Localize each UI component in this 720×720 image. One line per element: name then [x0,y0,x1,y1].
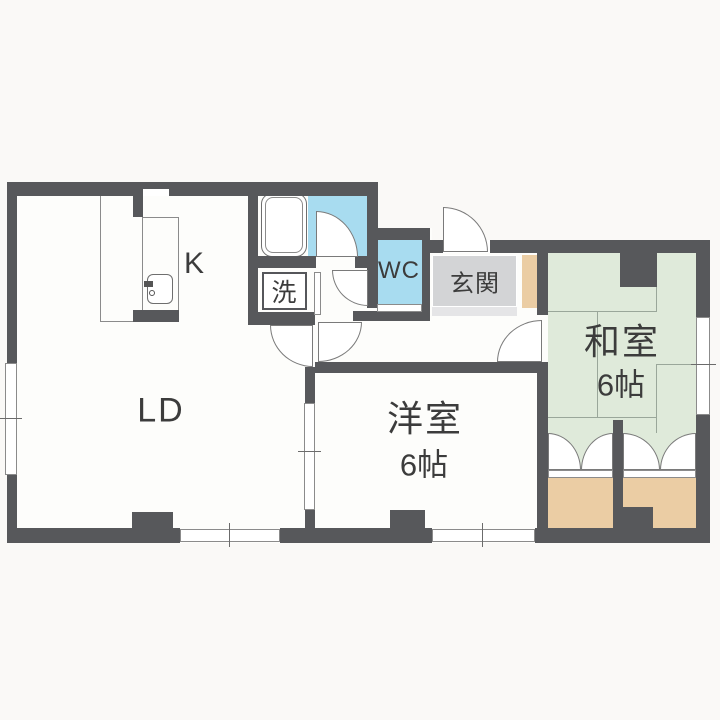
kitchen-counter-line [100,321,134,322]
closet-left-floor [548,478,613,528]
closet-door-track [623,470,696,478]
entrance-door-arc [443,207,488,252]
wall [535,528,710,543]
room-label-toilet: WC [378,257,420,285]
window [432,529,535,542]
room-label-entrance: 玄関 [450,264,500,299]
wall [7,528,180,543]
wall [7,182,378,196]
closet-door-track [548,470,613,478]
opening-tick [298,451,321,452]
wall-pillar [620,253,657,287]
wall [305,317,315,325]
tatami-line [656,287,657,312]
wall [422,228,430,318]
tatami-line [656,364,696,365]
wall [430,240,443,253]
shoe-cabinet [522,255,537,308]
room-label-kitchen: K [184,247,206,281]
kitchen-sink [147,274,173,304]
wall [305,367,315,403]
wall [315,362,537,373]
room-size-western-room: 6帖 [400,440,448,485]
floor-plan-canvas: LD K 洗 WC 玄関 和室 6帖 洋室 6帖 [0,0,720,720]
entrance-step [432,307,517,316]
wall [367,196,378,308]
wall-pillar [133,196,143,217]
wall [248,256,316,268]
tatami-line [656,364,657,433]
wall [490,240,710,253]
wall [280,528,432,543]
wall [537,253,548,315]
wall [353,311,430,321]
wall [696,415,710,543]
room-opening [304,403,315,510]
wall [623,507,653,528]
window [696,317,710,415]
wall [613,420,623,530]
room-size-japanese-room: 6帖 [597,360,645,405]
wall [7,182,17,363]
kitchen-counter-line [100,196,101,322]
window-tick [229,523,230,547]
window [180,529,280,542]
toilet-door-gap [377,304,422,312]
room-label-japanese-room: 和室 [584,313,660,365]
window-tick [0,418,22,419]
wall [305,510,315,528]
wall [367,228,430,240]
wall [537,362,548,528]
room-label-western-room: 洋室 [387,390,463,442]
window-tick [691,364,716,365]
room-label-living-dining: LD [137,392,184,431]
room-label-laundry: 洗 [271,273,296,309]
kitchen-window-slit [143,189,169,196]
tatami-line [548,417,656,418]
wall-pillar [132,512,173,528]
tatami-line [548,311,657,312]
bathtub-inner [265,197,303,253]
laundry-door-leaf [314,272,321,315]
wall [133,310,179,322]
wall-pillar [390,510,425,528]
window [5,363,17,475]
kitchen-faucet-knob [149,290,155,296]
window-tick [482,523,483,547]
kitchen-faucet-icon [144,281,153,287]
